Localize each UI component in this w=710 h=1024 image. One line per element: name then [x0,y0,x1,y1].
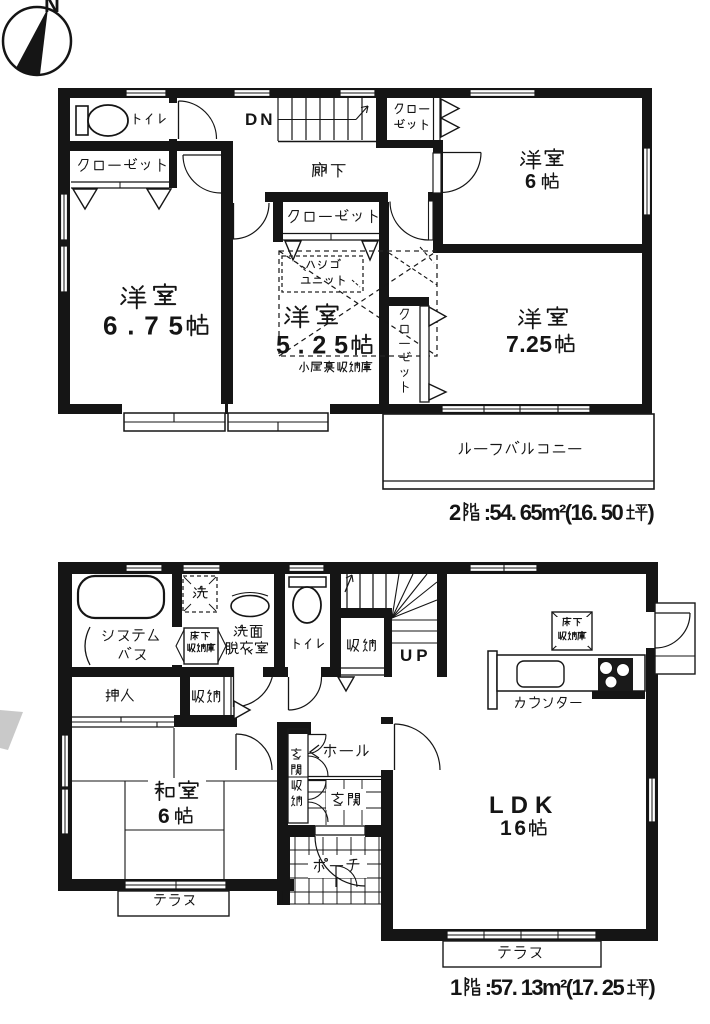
svg-text:UP: UP [400,646,432,665]
svg-text::54. 65m²(16. 50: :54. 65m²(16. 50 [484,500,624,525]
svg-text:LDK: LDK [489,792,559,819]
svg-text:N: N [44,0,60,17]
svg-text:DN: DN [245,110,276,129]
svg-text::57. 13m²(17. 25: :57. 13m²(17. 25 [485,975,625,1000]
svg-text:): ) [648,975,655,1000]
svg-text:): ) [647,500,654,525]
svg-text:5.25: 5.25 [276,332,348,360]
svg-text:6: 6 [158,805,170,828]
svg-text:7.25: 7.25 [506,331,552,357]
svg-text:1: 1 [450,975,462,1000]
svg-text:2: 2 [449,500,461,525]
svg-text:6: 6 [525,171,536,193]
